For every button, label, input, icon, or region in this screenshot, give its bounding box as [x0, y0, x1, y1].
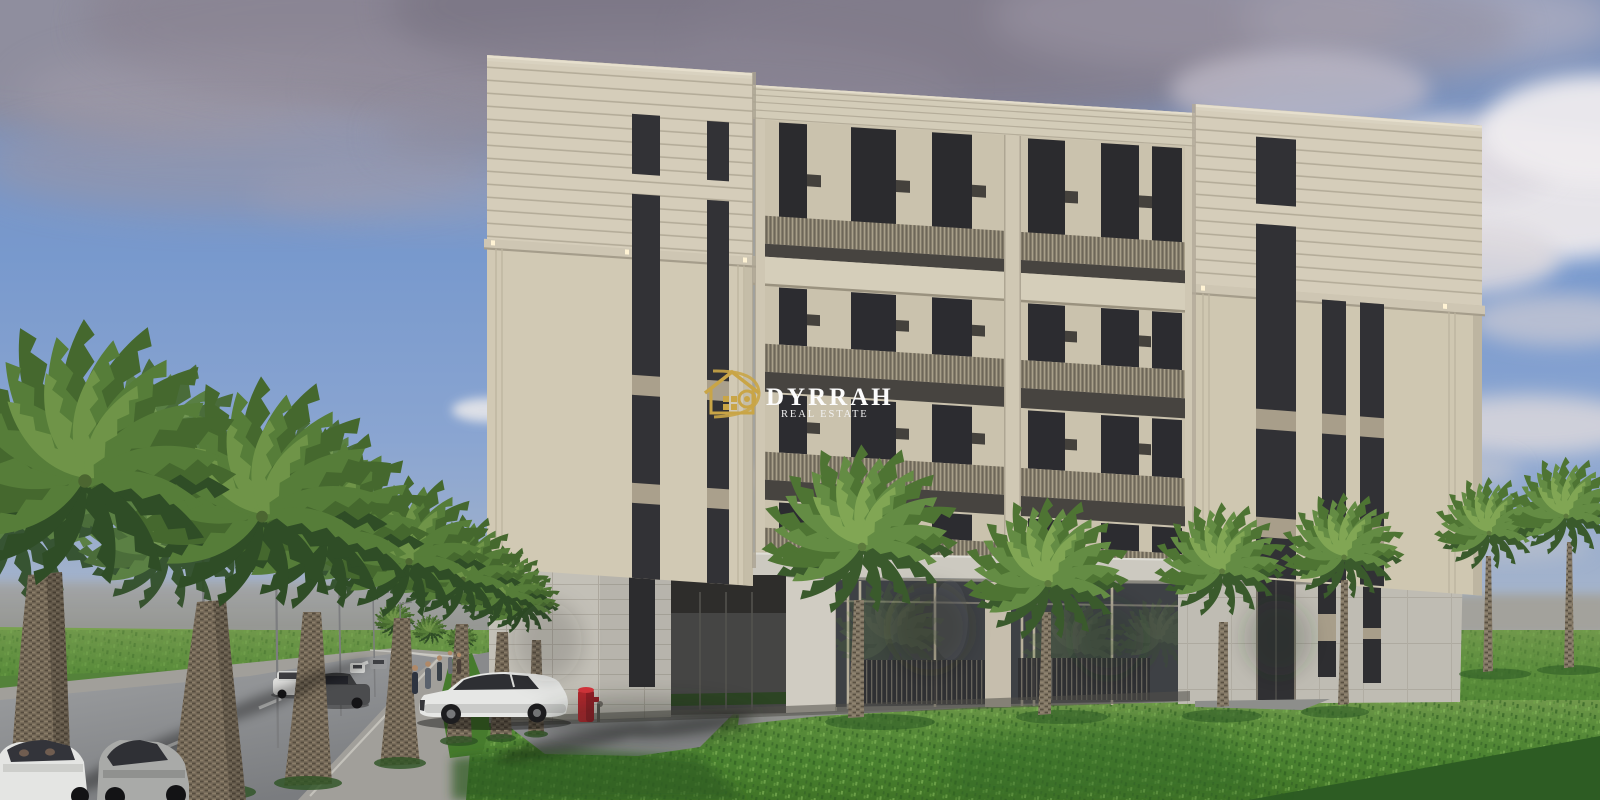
svg-text:REAL ESTATE: REAL ESTATE [781, 409, 869, 420]
svg-text:DYRRAH: DYRRAH [766, 384, 894, 411]
